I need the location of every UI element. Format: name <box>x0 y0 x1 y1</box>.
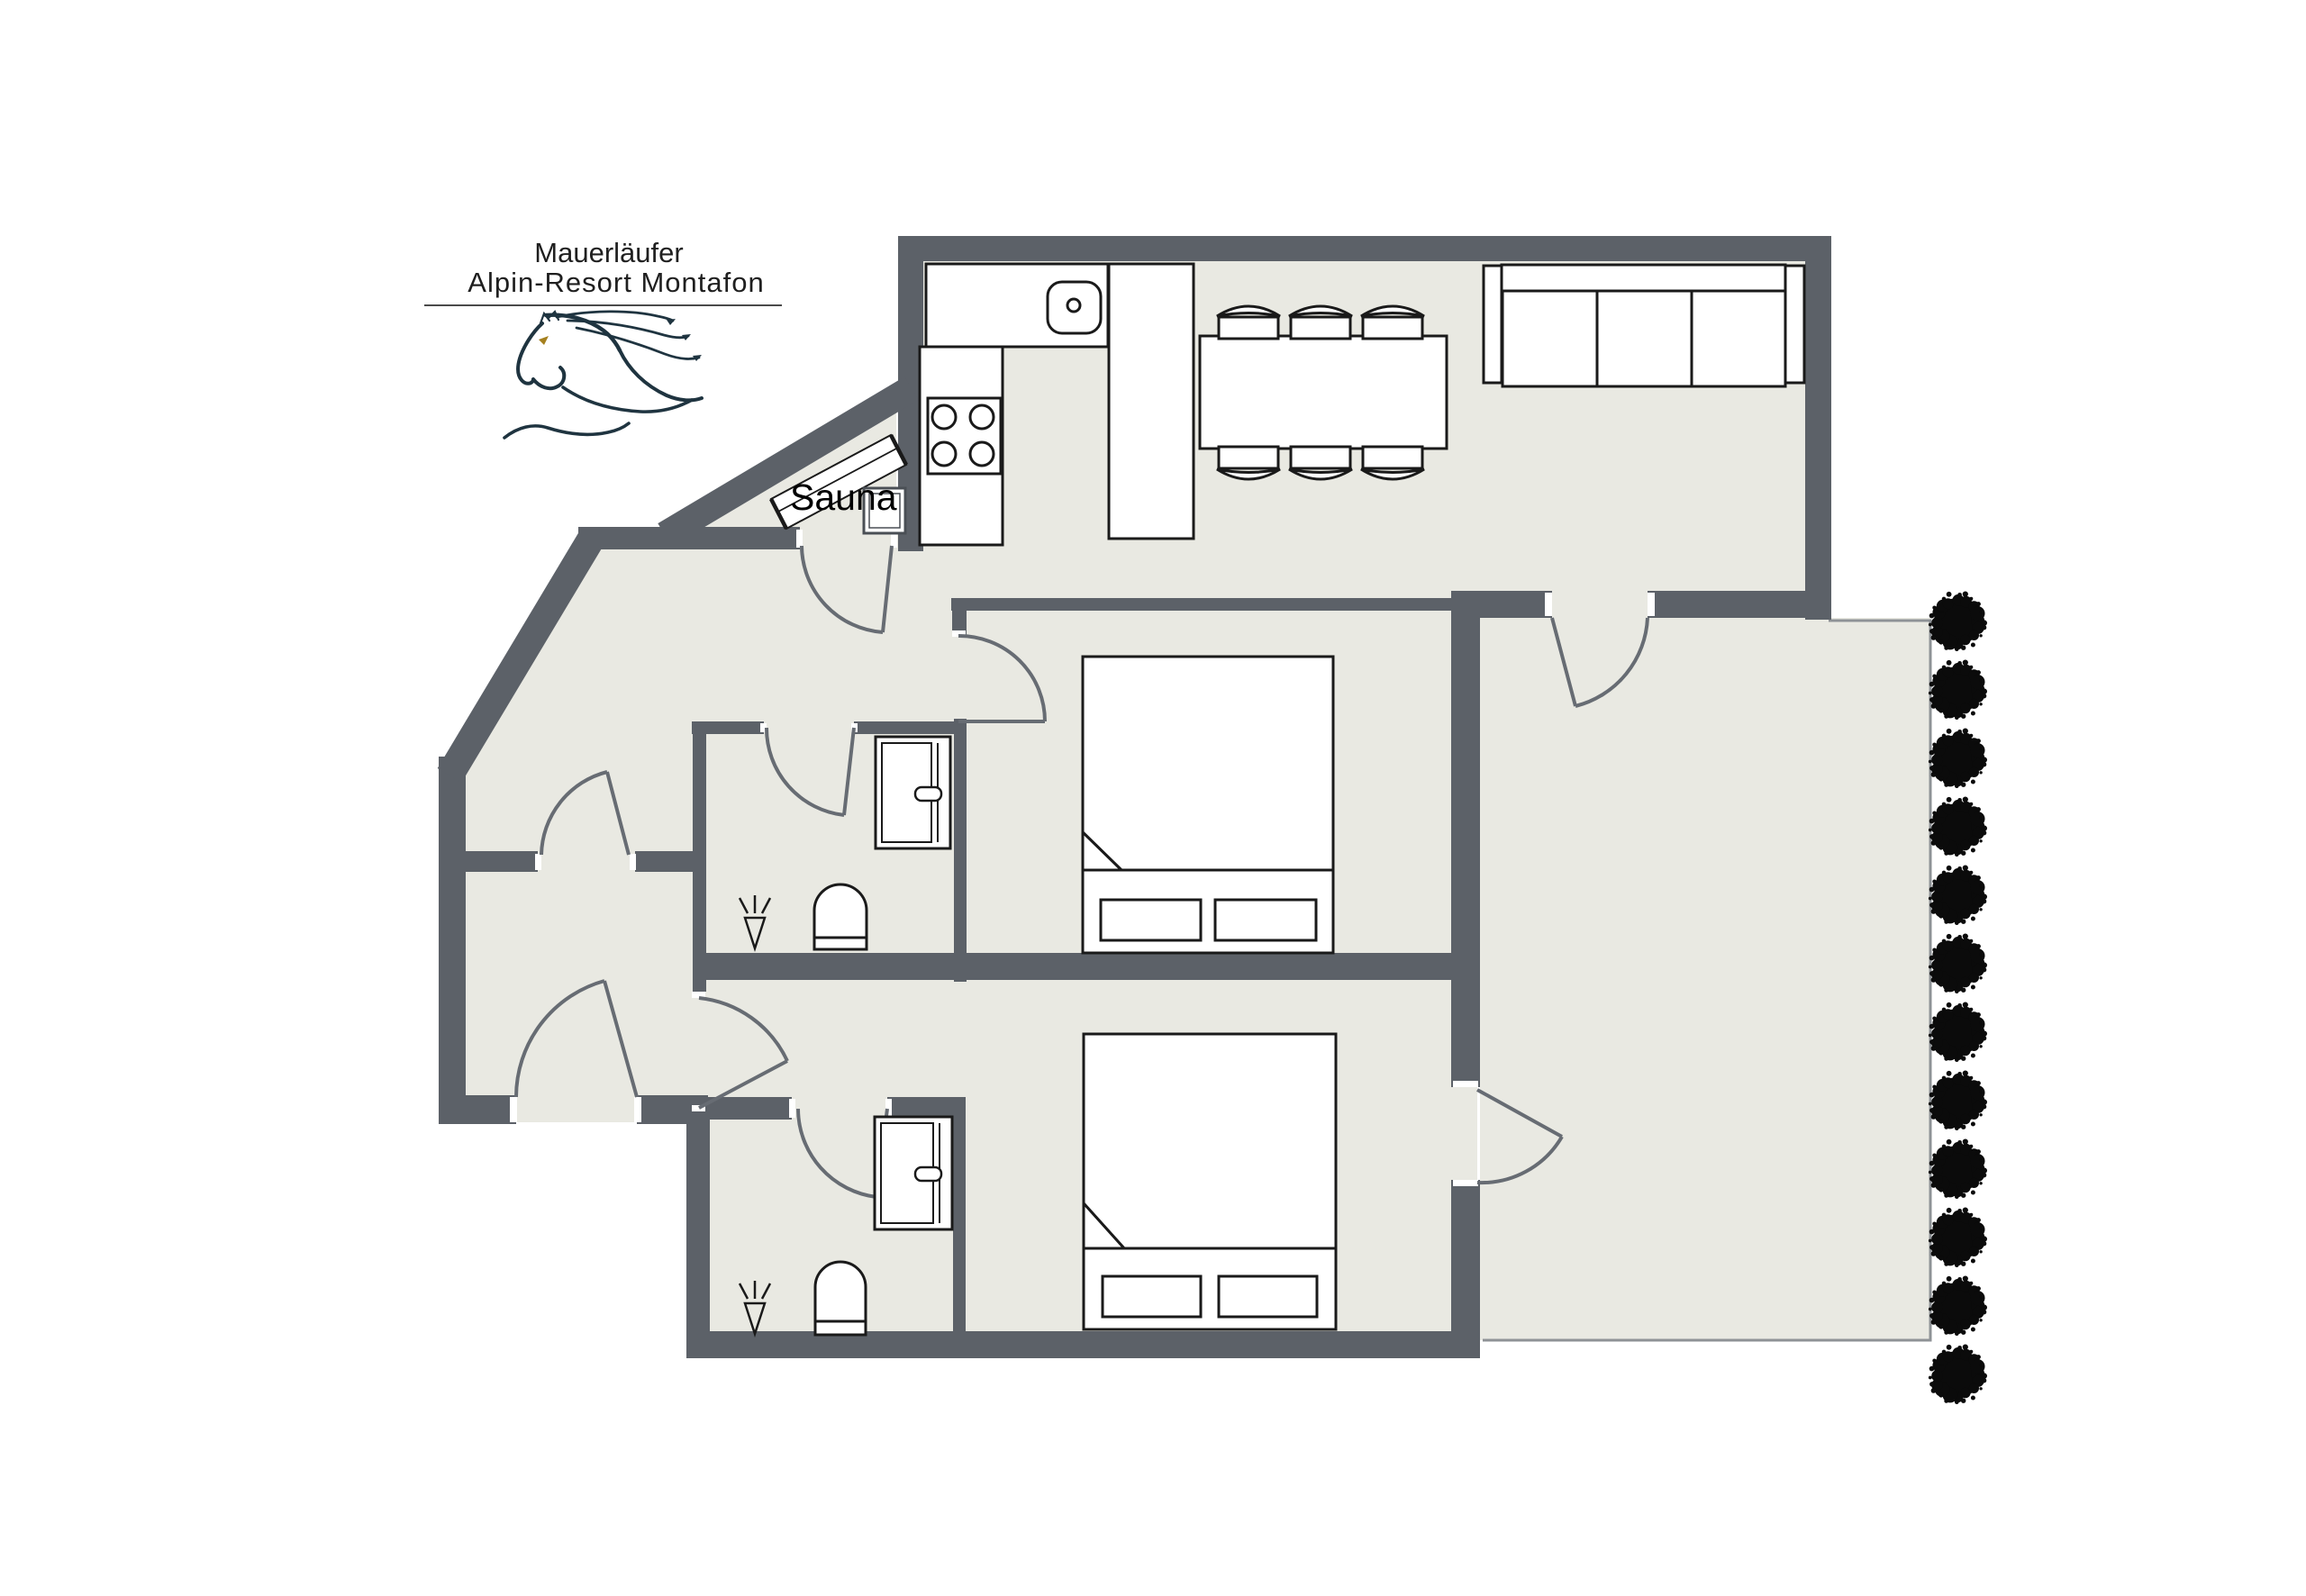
svg-text:Mauerläufer: Mauerläufer <box>534 237 683 268</box>
svg-text:Alpin-Resort Montafon: Alpin-Resort Montafon <box>468 267 764 298</box>
svg-text:Sauna: Sauna <box>790 476 897 518</box>
